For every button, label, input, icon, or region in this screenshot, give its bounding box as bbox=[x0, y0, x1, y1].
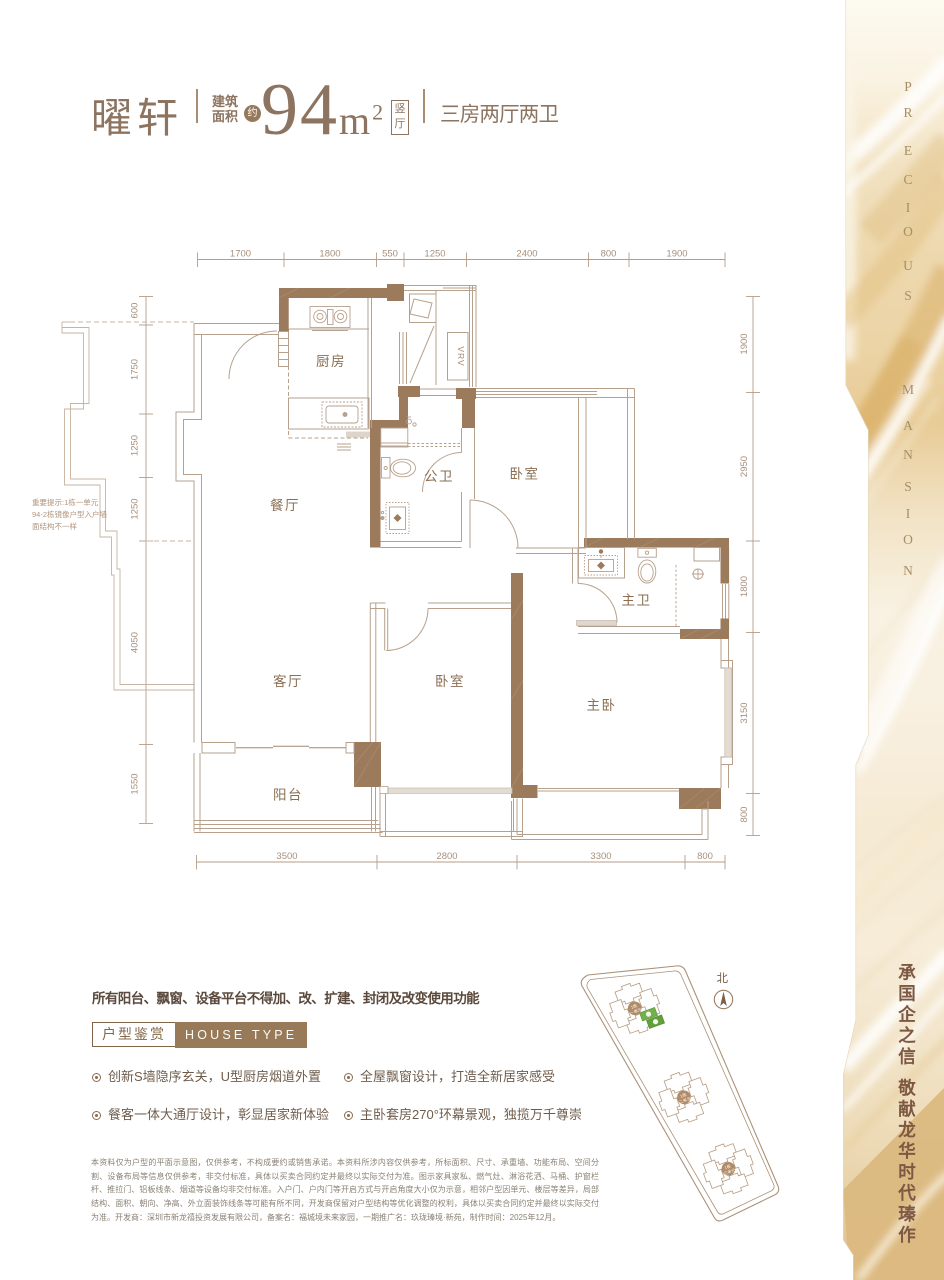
svg-text:A: A bbox=[903, 418, 913, 433]
svg-text:U: U bbox=[903, 258, 913, 273]
svg-text:2800: 2800 bbox=[436, 851, 457, 862]
svg-text:国: 国 bbox=[898, 984, 916, 1004]
svg-text:94-2栋镜像户型入户墙: 94-2栋镜像户型入户墙 bbox=[32, 509, 108, 519]
svg-text:VRV: VRV bbox=[456, 346, 466, 366]
svg-text:1800: 1800 bbox=[319, 249, 340, 260]
svg-text:1700: 1700 bbox=[230, 249, 251, 260]
svg-text:餐厅: 餐厅 bbox=[270, 498, 300, 513]
svg-text:3500: 3500 bbox=[276, 851, 297, 862]
svg-text:O: O bbox=[903, 224, 913, 239]
svg-text:2950: 2950 bbox=[739, 456, 750, 477]
svg-text:C: C bbox=[903, 172, 912, 187]
svg-text:1550: 1550 bbox=[130, 773, 141, 794]
svg-text:主卫: 主卫 bbox=[622, 593, 652, 608]
svg-text:卧室: 卧室 bbox=[435, 673, 465, 689]
svg-text:I: I bbox=[906, 200, 911, 215]
svg-text:1800: 1800 bbox=[739, 576, 750, 597]
svg-text:R: R bbox=[903, 105, 912, 120]
svg-text:O: O bbox=[903, 532, 913, 547]
svg-text:P: P bbox=[904, 79, 912, 94]
svg-text:550: 550 bbox=[382, 249, 398, 260]
svg-text:4050: 4050 bbox=[130, 632, 141, 653]
svg-text:I: I bbox=[906, 506, 911, 521]
svg-text:1750: 1750 bbox=[130, 359, 141, 380]
svg-text:N: N bbox=[903, 563, 913, 578]
svg-text:之: 之 bbox=[898, 1026, 916, 1046]
svg-text:E: E bbox=[904, 143, 912, 158]
svg-text:M: M bbox=[902, 382, 914, 397]
svg-text:客厅: 客厅 bbox=[273, 673, 303, 689]
svg-text:N: N bbox=[903, 447, 913, 462]
svg-text:800: 800 bbox=[739, 807, 750, 823]
svg-text:主卧: 主卧 bbox=[587, 698, 617, 713]
svg-text:代: 代 bbox=[897, 1183, 916, 1203]
svg-text:公卫: 公卫 bbox=[424, 469, 454, 484]
svg-text:3300: 3300 bbox=[590, 851, 611, 862]
svg-text:信: 信 bbox=[898, 1047, 916, 1067]
svg-text:S: S bbox=[904, 288, 912, 303]
svg-text:华: 华 bbox=[898, 1141, 916, 1161]
svg-text:时: 时 bbox=[898, 1162, 916, 1182]
svg-text:1900: 1900 bbox=[666, 249, 687, 260]
svg-text:龙: 龙 bbox=[898, 1120, 916, 1140]
svg-text:1250: 1250 bbox=[130, 498, 141, 519]
svg-text:面结构不一样: 面结构不一样 bbox=[32, 521, 77, 531]
svg-text:3150: 3150 bbox=[739, 702, 750, 723]
svg-text:阳台: 阳台 bbox=[273, 788, 303, 803]
svg-text:1900: 1900 bbox=[739, 333, 750, 354]
svg-text:800: 800 bbox=[697, 851, 713, 862]
svg-text:1250: 1250 bbox=[130, 435, 141, 456]
svg-text:厨房: 厨房 bbox=[316, 354, 346, 369]
svg-text:重要提示:1栋一单元: 重要提示:1栋一单元 bbox=[32, 497, 99, 507]
svg-text:卧室: 卧室 bbox=[510, 466, 540, 482]
svg-text:1250: 1250 bbox=[424, 249, 445, 260]
svg-text:2400: 2400 bbox=[516, 249, 537, 260]
svg-text:敬: 敬 bbox=[897, 1078, 916, 1098]
svg-text:600: 600 bbox=[130, 303, 141, 319]
svg-text:献: 献 bbox=[898, 1099, 916, 1119]
svg-text:S: S bbox=[904, 479, 912, 494]
svg-text:作: 作 bbox=[898, 1225, 916, 1245]
svg-text:北: 北 bbox=[717, 972, 729, 985]
svg-text:企: 企 bbox=[897, 1005, 916, 1025]
svg-text:800: 800 bbox=[601, 249, 617, 260]
svg-text:承: 承 bbox=[898, 963, 916, 983]
svg-text:瑧: 瑧 bbox=[898, 1204, 916, 1224]
